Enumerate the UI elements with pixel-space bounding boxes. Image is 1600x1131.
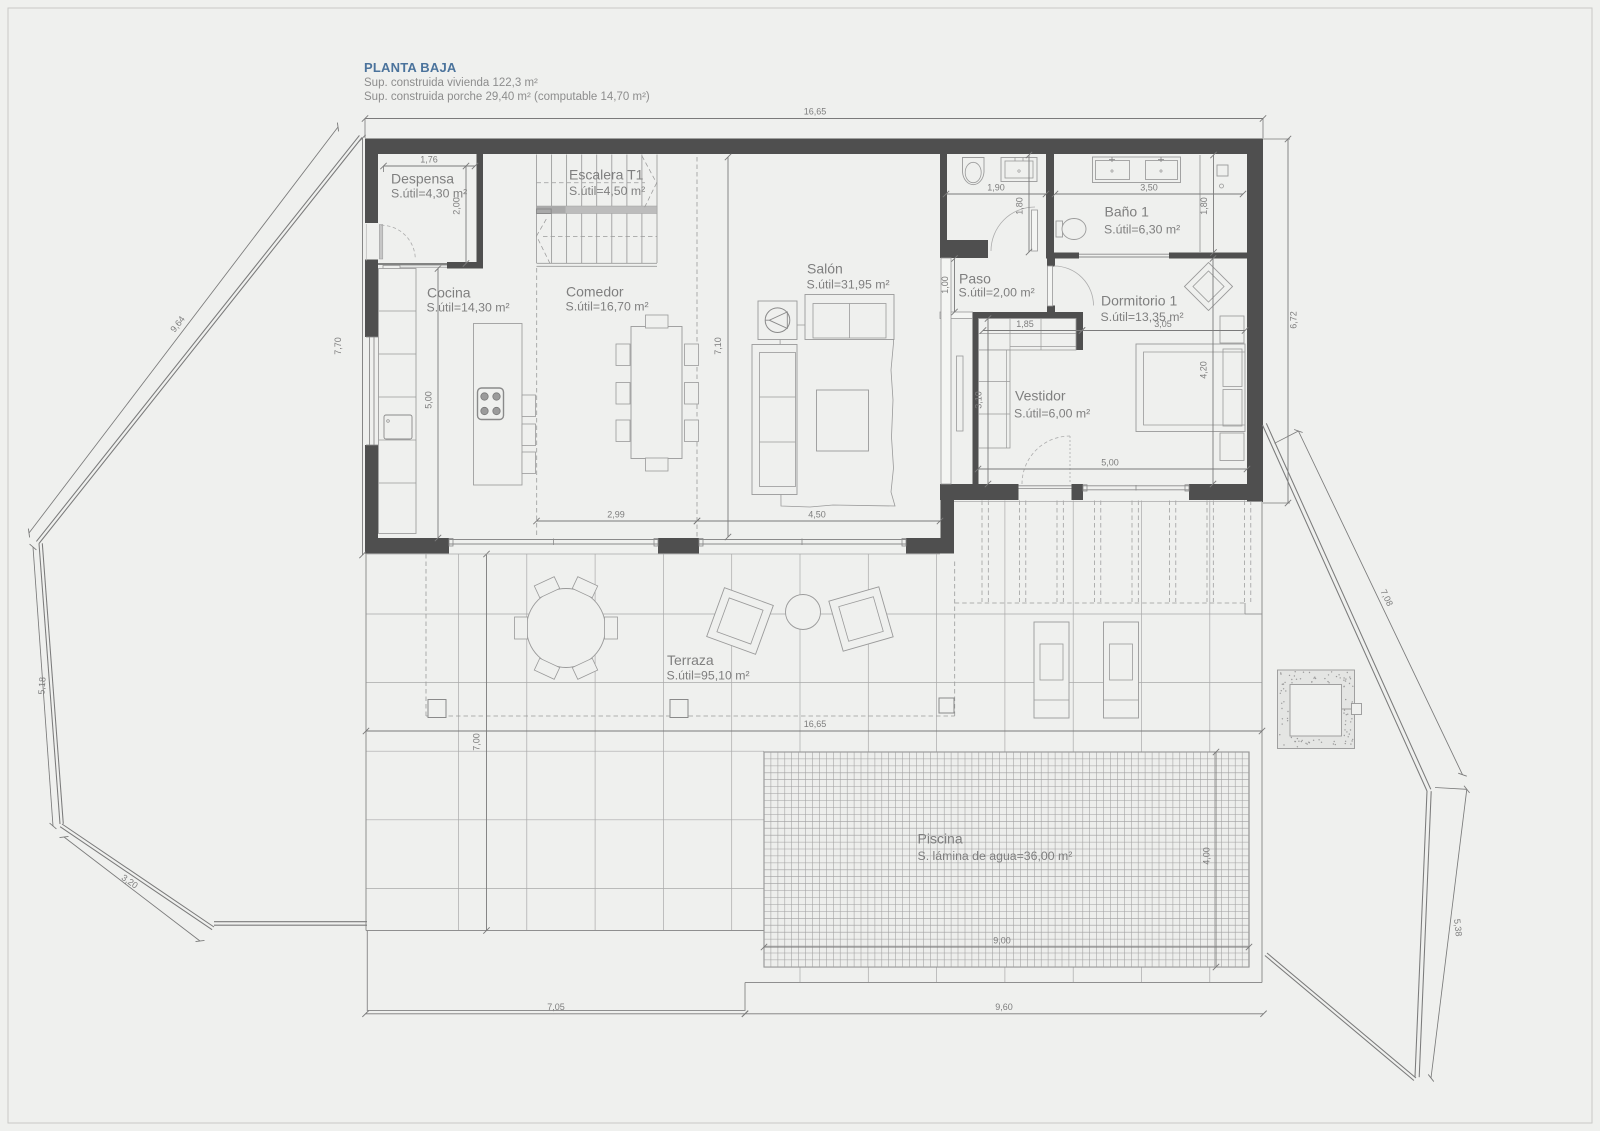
svg-text:Sup. construida vivienda 122,3: Sup. construida vivienda 122,3 m²	[364, 77, 538, 89]
svg-text:Despensa: Despensa	[391, 171, 454, 187]
svg-text:1,00: 1,00	[940, 276, 950, 294]
svg-text:16,65: 16,65	[804, 719, 827, 729]
svg-text:S.útil=31,95 m²: S.útil=31,95 m²	[807, 278, 890, 292]
svg-text:Vestidor: Vestidor	[1015, 388, 1066, 404]
svg-text:7,00: 7,00	[472, 733, 482, 751]
svg-text:5,18: 5,18	[36, 677, 47, 695]
svg-text:S.útil=6,00 m²: S.útil=6,00 m²	[1014, 407, 1090, 421]
svg-text:S. lámina de agua=36,00 m²: S. lámina de agua=36,00 m²	[918, 849, 1073, 863]
svg-text:7,10: 7,10	[713, 337, 723, 355]
svg-text:2,00: 2,00	[452, 197, 462, 215]
svg-text:1,85: 1,85	[1016, 319, 1034, 329]
svg-text:4,20: 4,20	[1199, 361, 1209, 379]
svg-text:3,50: 3,50	[1140, 183, 1158, 193]
svg-text:Escalera T1: Escalera T1	[569, 167, 644, 183]
svg-text:3,10: 3,10	[974, 391, 984, 409]
svg-text:6,72: 6,72	[1289, 311, 1299, 329]
svg-text:Salón: Salón	[807, 261, 843, 277]
svg-text:3,05: 3,05	[1154, 319, 1172, 329]
svg-text:Terraza: Terraza	[667, 652, 714, 668]
svg-text:Sup. construida porche 29,40 m: Sup. construida porche 29,40 m² (computa…	[364, 91, 650, 103]
svg-text:Baño 1: Baño 1	[1105, 204, 1150, 220]
svg-text:1,90: 1,90	[987, 183, 1005, 193]
svg-text:7,70: 7,70	[333, 337, 343, 355]
svg-text:Dormitorio 1: Dormitorio 1	[1101, 293, 1177, 309]
svg-text:Cocina: Cocina	[427, 285, 471, 301]
svg-text:9,00: 9,00	[993, 936, 1011, 946]
svg-text:Piscina: Piscina	[918, 831, 963, 847]
svg-text:1,80: 1,80	[1015, 197, 1025, 215]
svg-text:S.útil=2,00 m²: S.útil=2,00 m²	[959, 286, 1035, 300]
svg-text:16,65: 16,65	[804, 107, 827, 117]
svg-text:9,60: 9,60	[995, 1002, 1013, 1012]
svg-text:S.útil=4,50 m²: S.útil=4,50 m²	[569, 184, 645, 198]
svg-text:2,99: 2,99	[607, 510, 625, 520]
svg-text:1,80: 1,80	[1199, 197, 1209, 215]
svg-text:S.útil=14,30 m²: S.útil=14,30 m²	[427, 301, 510, 315]
svg-text:4,00: 4,00	[1202, 847, 1212, 865]
svg-text:S.útil=16,70 m²: S.útil=16,70 m²	[566, 300, 649, 314]
svg-text:5,00: 5,00	[424, 391, 434, 409]
svg-text:PLANTA BAJA: PLANTA BAJA	[364, 60, 457, 75]
svg-text:Comedor: Comedor	[566, 284, 624, 300]
svg-text:5,00: 5,00	[1101, 458, 1119, 468]
svg-text:Paso: Paso	[959, 271, 991, 287]
svg-text:4,50: 4,50	[808, 510, 826, 520]
svg-text:7,05: 7,05	[547, 1002, 565, 1012]
svg-text:S.útil=6,30 m²: S.útil=6,30 m²	[1104, 223, 1180, 237]
svg-text:S.útil=95,10 m²: S.útil=95,10 m²	[667, 669, 750, 683]
svg-text:5,38: 5,38	[1452, 918, 1464, 937]
svg-text:1,76: 1,76	[420, 155, 438, 165]
